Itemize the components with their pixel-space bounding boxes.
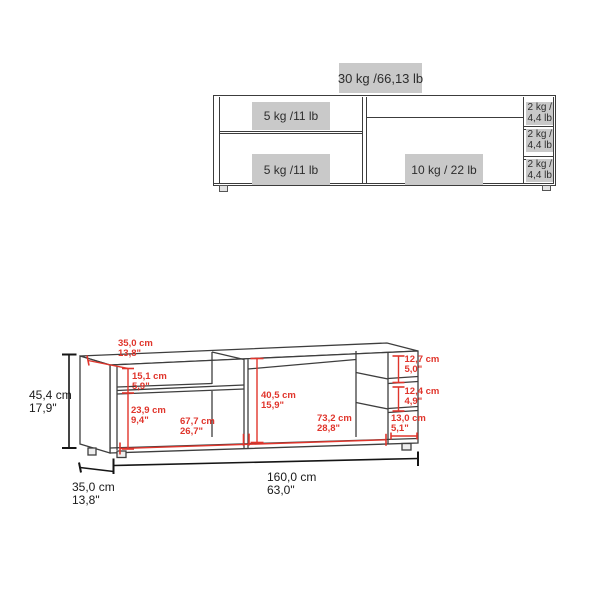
dim-width-inch: 63,0": [267, 484, 316, 497]
dim-height-cm: 45,4 cm: [29, 389, 72, 402]
dim-side-bottom-inch: 5,1": [391, 424, 426, 434]
dim-width-cm: 160,0 cm: [267, 471, 316, 484]
dim-label-overall-width: 160,0 cm 63,0": [267, 471, 316, 496]
dim-center-width-cm: 73,2 cm: [317, 414, 352, 424]
dim-left-width-inch: 26,7": [180, 427, 215, 437]
dim-base-depth-inch: 13,8": [72, 494, 115, 507]
dim-label-side-bottom: 13,0 cm 5,1": [391, 414, 426, 434]
dim-label-center-section-width: 73,2 cm 28,8": [317, 414, 352, 434]
dim-height-inch: 17,9": [29, 402, 72, 415]
dim-label-base-depth: 35,0 cm 13,8": [72, 481, 115, 506]
dim-label-left-top-opening: 15,1 cm 5,9": [132, 372, 167, 392]
dim-label-side-top: 12,7 cm 5,0": [405, 355, 440, 375]
dim-base-depth-cm: 35,0 cm: [72, 481, 115, 494]
dim-center-height-inch: 15,9": [261, 401, 296, 411]
dim-top-depth-inch: 13,8": [118, 349, 153, 359]
tv-stand-spec-sheet: 30 kg /66,13 lb 5 kg /11 lb 5 kg /11 lb …: [0, 0, 600, 600]
dim-side-middle-inch: 4,9": [405, 397, 440, 407]
dim-center-width-inch: 28,8": [317, 424, 352, 434]
dim-side-top-cm: 12,7 cm: [405, 355, 440, 365]
dim-side-top-inch: 5,0": [405, 365, 440, 375]
dimension-diagram: [0, 0, 600, 600]
dim-center-height-cm: 40,5 cm: [261, 391, 296, 401]
dim-label-left-bottom-opening: 23,9 cm 9,4": [131, 406, 166, 426]
dim-label-overall-height: 45,4 cm 17,9": [29, 389, 72, 414]
dim-label-top-depth: 35,0 cm 13,8": [118, 339, 153, 359]
dim-label-side-middle: 12,4 cm 4,9": [405, 387, 440, 407]
dim-left-bottom-inch: 9,4": [131, 416, 166, 426]
dim-label-left-section-width: 67,7 cm 26,7": [180, 417, 215, 437]
dim-side-middle-cm: 12,4 cm: [405, 387, 440, 397]
dim-left-top-inch: 5,9": [132, 382, 167, 392]
dim-label-center-opening-height: 40,5 cm 15,9": [261, 391, 296, 411]
